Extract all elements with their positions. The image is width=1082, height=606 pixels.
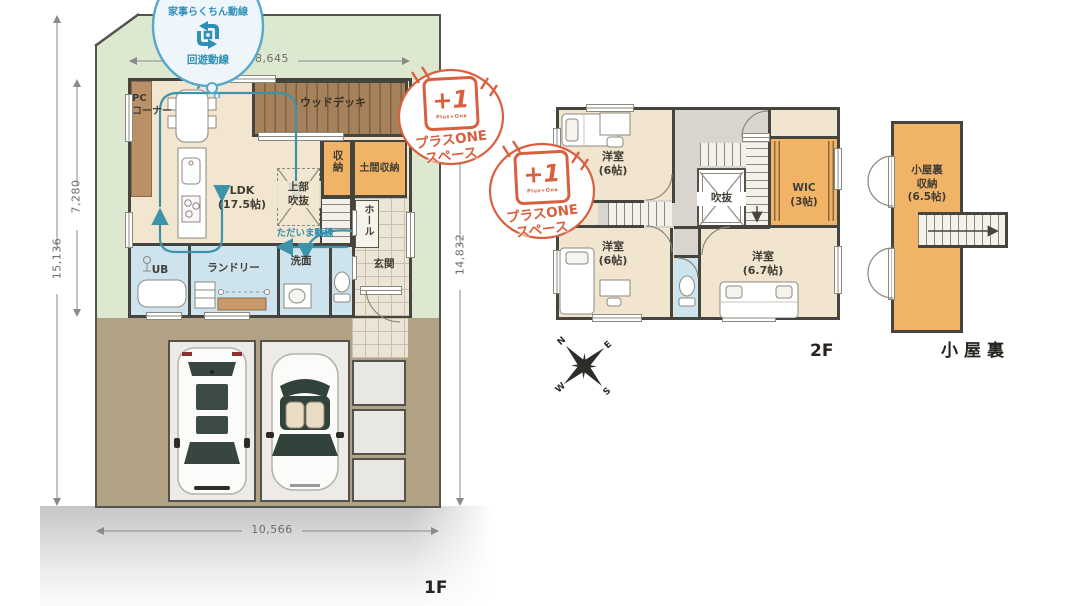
desk-icon-a (598, 111, 632, 153)
floor-label-1f: 1F (424, 578, 447, 598)
compass-w: W (554, 381, 568, 395)
bubble-label: 回遊動線 (150, 54, 266, 68)
laundry-label: ランドリー (189, 262, 278, 276)
plus-one-box: +1 Plus+One (513, 150, 571, 206)
plus-one-badge-2f: +1 Plus+One プラスONE スペース (487, 140, 597, 246)
dim-bottom: 10,566 (244, 523, 300, 536)
toilet-icon-1f (331, 254, 353, 312)
attic-stairs (918, 212, 1008, 248)
convertible-top-view-icon (266, 352, 344, 492)
washroom-label: 洗面 (278, 255, 324, 269)
compass-n: N (556, 335, 568, 347)
stairs-2f-top-run (700, 143, 748, 166)
ub-label: UB (138, 264, 182, 278)
stairs-2f-right-run (746, 143, 768, 229)
bedroom-c-label: 洋室 (6.7帖) (733, 250, 793, 279)
compass-rose-icon: N E S W (531, 314, 637, 420)
step-3 (352, 458, 406, 502)
ldk-label: LDK (17.5帖) (212, 184, 272, 213)
compass-e: E (603, 340, 614, 352)
floorplan-canvas: ウッドデッキ PC コーナー 収納 土間収納 ホール 玄関 上部 吹抜 LDK … (0, 0, 1082, 606)
compass-s: S (602, 386, 614, 398)
double-bed-icon (718, 280, 802, 318)
plus-one-big: +1 (432, 87, 470, 113)
step-2 (352, 409, 406, 455)
floor-label-attic: 小屋裏 (941, 336, 1010, 361)
desk-icon-b (598, 278, 632, 308)
closet-label: 収納 (330, 150, 344, 173)
plus-one-big: +1 (523, 161, 561, 187)
plus-one-small: Plus+One (436, 113, 468, 121)
plus-one-small: Plus+One (527, 187, 559, 195)
step-1 (352, 360, 406, 406)
stairs-2f-corridor (608, 202, 672, 226)
laundry-furniture-icon (192, 250, 276, 312)
toilet-icon-2f (676, 262, 698, 316)
hall-2f-lower (674, 228, 700, 258)
hall-label: ホール (361, 204, 374, 237)
wagon-top-view-icon (174, 346, 250, 496)
entrance-label: 玄関 (364, 258, 404, 272)
approach-tiles (352, 318, 408, 358)
dim-left-outer: 15,136 (51, 229, 64, 289)
attic-storage-label: 小屋裏 収納 (6.5帖) (896, 164, 958, 205)
bubble-title: 家事らくちん動線 (150, 6, 266, 19)
plus-one-box: +1 Plus+One (422, 76, 480, 132)
flow-bubble: 家事らくちん動線 回遊動線 (150, 0, 266, 98)
tadaima-flow-label: ただいま動線 (272, 228, 338, 240)
dim-right: 14,832 (454, 225, 467, 285)
dim-left-inner: 7,280 (70, 169, 83, 225)
loop-arrows-icon (191, 18, 225, 52)
floor-label-2f: 2F (810, 341, 833, 361)
wic-label: WIC (3帖) (776, 182, 832, 209)
upper-void-label: 上部 吹抜 (276, 181, 321, 208)
void-2f-label: 吹抜 (697, 192, 746, 206)
wood-deck-label: ウッドデッキ (288, 96, 378, 110)
bathtub-icon (135, 250, 189, 312)
